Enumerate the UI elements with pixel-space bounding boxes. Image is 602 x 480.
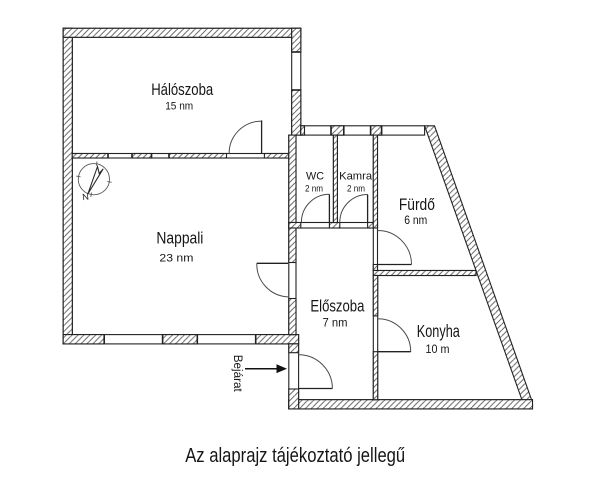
svg-text:Fürdő: Fürdő [399, 195, 435, 214]
svg-text:Konyha: Konyha [417, 321, 460, 341]
svg-text:Előszoba: Előszoba [310, 296, 364, 315]
svg-text:N: N [82, 191, 90, 202]
svg-text:10 m: 10 m [426, 344, 450, 356]
svg-text:Az alaprajz tájékoztató jelleg: Az alaprajz tájékoztató jellegű [185, 445, 405, 467]
svg-text:Nappali: Nappali [156, 228, 203, 247]
svg-text:Hálószoba: Hálószoba [151, 81, 214, 99]
svg-text:23 nm: 23 nm [159, 252, 193, 264]
svg-text:6 nm: 6 nm [404, 215, 427, 227]
svg-text:15 nm: 15 nm [165, 100, 193, 112]
svg-text:2 nm: 2 nm [347, 184, 365, 194]
svg-text:Kamra: Kamra [339, 171, 373, 183]
svg-text:7 nm: 7 nm [323, 317, 348, 329]
svg-text:WC: WC [306, 171, 324, 183]
svg-text:Bejárat: Bejárat [231, 355, 243, 393]
svg-text:2 nm: 2 nm [305, 184, 323, 194]
